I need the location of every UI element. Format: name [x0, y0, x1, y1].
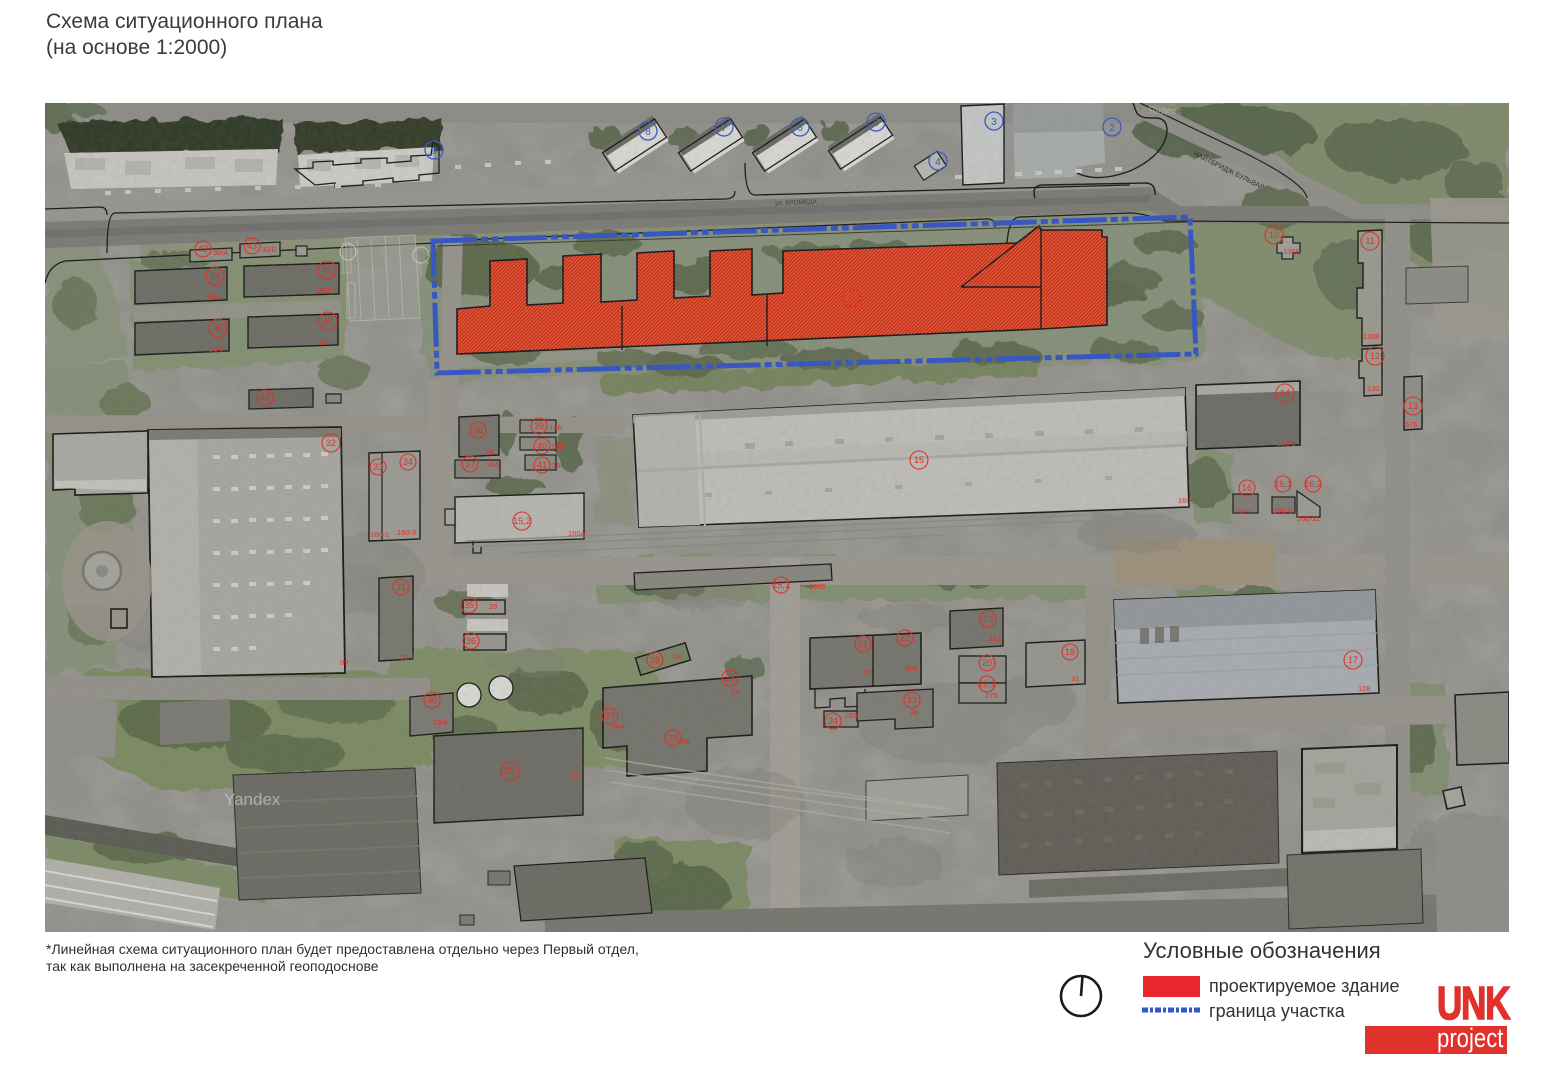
svg-text:44: 44 [210, 271, 220, 281]
svg-text:24А: 24А [611, 722, 624, 731]
svg-text:130Б: 130Б [1283, 247, 1301, 256]
svg-text:36: 36 [466, 636, 476, 646]
svg-text:10: 10 [1269, 230, 1279, 240]
svg-text:30/1: 30/1 [207, 292, 222, 301]
svg-text:99-1: 99-1 [400, 653, 415, 662]
svg-text:6: 6 [797, 123, 803, 134]
svg-text:39: 39 [534, 421, 544, 431]
svg-text:37: 37 [465, 459, 475, 469]
svg-text:13: 13 [1408, 401, 1418, 411]
svg-text:160-9: 160-9 [1277, 439, 1296, 448]
svg-text:40: 40 [537, 441, 547, 451]
svg-text:48: 48 [260, 393, 270, 403]
svg-text:18В: 18В [551, 442, 564, 451]
svg-text:8: 8 [645, 127, 651, 138]
svg-text:20: 20 [982, 658, 992, 668]
svg-text:1306: 1306 [1363, 332, 1380, 341]
svg-text:30/Б: 30/Б [261, 245, 276, 254]
svg-text:14: 14 [1280, 388, 1290, 398]
svg-text:42: 42 [198, 244, 208, 254]
svg-text:5: 5 [873, 118, 879, 129]
svg-text:160-8: 160-8 [1273, 506, 1292, 515]
svg-text:30/А: 30/А [213, 248, 228, 257]
svg-text:27: 27 [605, 711, 615, 721]
svg-text:41: 41 [537, 460, 547, 470]
svg-text:160-7: 160-7 [1233, 507, 1252, 516]
svg-text:18Г: 18Г [552, 461, 564, 470]
svg-text:30: 30 [427, 695, 437, 705]
svg-text:160-1: 160-1 [370, 530, 389, 539]
svg-text:99: 99 [340, 658, 348, 667]
svg-text:128: 128 [1358, 684, 1371, 693]
svg-text:30/2: 30/2 [317, 286, 332, 295]
svg-text:16,1: 16,1 [1274, 479, 1292, 489]
svg-text:3: 3 [991, 117, 997, 128]
svg-text:1605: 1605 [809, 582, 826, 591]
svg-text:18Б: 18Б [549, 423, 562, 432]
svg-text:43: 43 [247, 241, 257, 251]
svg-text:29: 29 [489, 602, 497, 611]
svg-text:32: 32 [326, 438, 336, 448]
svg-text:254: 254 [905, 664, 918, 673]
svg-text:12: 12 [1370, 351, 1380, 361]
svg-text:4: 4 [935, 157, 941, 168]
svg-text:45: 45 [322, 265, 332, 275]
svg-text:576: 576 [1405, 420, 1418, 429]
svg-text:15,2: 15,2 [513, 516, 531, 526]
svg-text:22: 22 [900, 633, 910, 643]
svg-text:21: 21 [858, 639, 868, 649]
svg-text:47: 47 [323, 316, 333, 326]
svg-text:18А: 18А [486, 460, 499, 469]
svg-text:7: 7 [721, 123, 727, 134]
svg-text:23: 23 [572, 770, 580, 779]
svg-text:160-11: 160-11 [1297, 514, 1320, 523]
svg-text:18: 18 [1065, 647, 1075, 657]
svg-text:38: 38 [473, 425, 483, 435]
svg-text:34: 34 [403, 457, 413, 467]
svg-text:160-3: 160-3 [397, 528, 416, 537]
svg-text:28: 28 [650, 655, 660, 665]
svg-text:31: 31 [396, 582, 406, 592]
svg-text:15,1: 15,1 [772, 580, 790, 590]
svg-text:29: 29 [505, 766, 515, 776]
svg-text:23: 23 [907, 695, 917, 705]
svg-text:11: 11 [1365, 236, 1374, 246]
svg-text:17: 17 [1348, 655, 1358, 665]
svg-text:160: 160 [1178, 496, 1191, 505]
svg-text:19: 19 [983, 614, 993, 624]
svg-text:16: 16 [1242, 483, 1252, 493]
svg-text:24: 24 [673, 652, 681, 661]
svg-text:16,2: 16,2 [1304, 479, 1322, 489]
svg-text:9: 9 [431, 146, 437, 157]
svg-text:130: 130 [1367, 384, 1380, 393]
svg-text:2: 2 [1109, 123, 1115, 134]
svg-text:35: 35 [464, 600, 474, 610]
svg-text:31: 31 [1071, 674, 1079, 683]
svg-text:20,1: 20,1 [978, 679, 996, 689]
svg-text:24: 24 [731, 688, 739, 697]
svg-text:33: 33 [373, 462, 383, 472]
svg-text:30/4: 30/4 [318, 338, 333, 347]
svg-text:24: 24 [828, 716, 838, 726]
svg-text:15: 15 [914, 455, 924, 465]
svg-text:18: 18 [485, 448, 493, 457]
svg-text:30/3: 30/3 [209, 345, 224, 354]
svg-text:26А: 26А [845, 711, 858, 720]
svg-text:46: 46 [213, 323, 223, 333]
svg-text:23/4: 23/4 [433, 718, 448, 727]
svg-text:275: 275 [985, 691, 998, 700]
svg-text:26: 26 [910, 708, 918, 717]
svg-text:25: 25 [862, 668, 870, 677]
svg-text:26Б: 26Б [677, 737, 690, 746]
svg-text:151: 151 [989, 634, 1002, 643]
svg-text:25: 25 [725, 673, 735, 683]
svg-text:160А: 160А [568, 529, 586, 538]
